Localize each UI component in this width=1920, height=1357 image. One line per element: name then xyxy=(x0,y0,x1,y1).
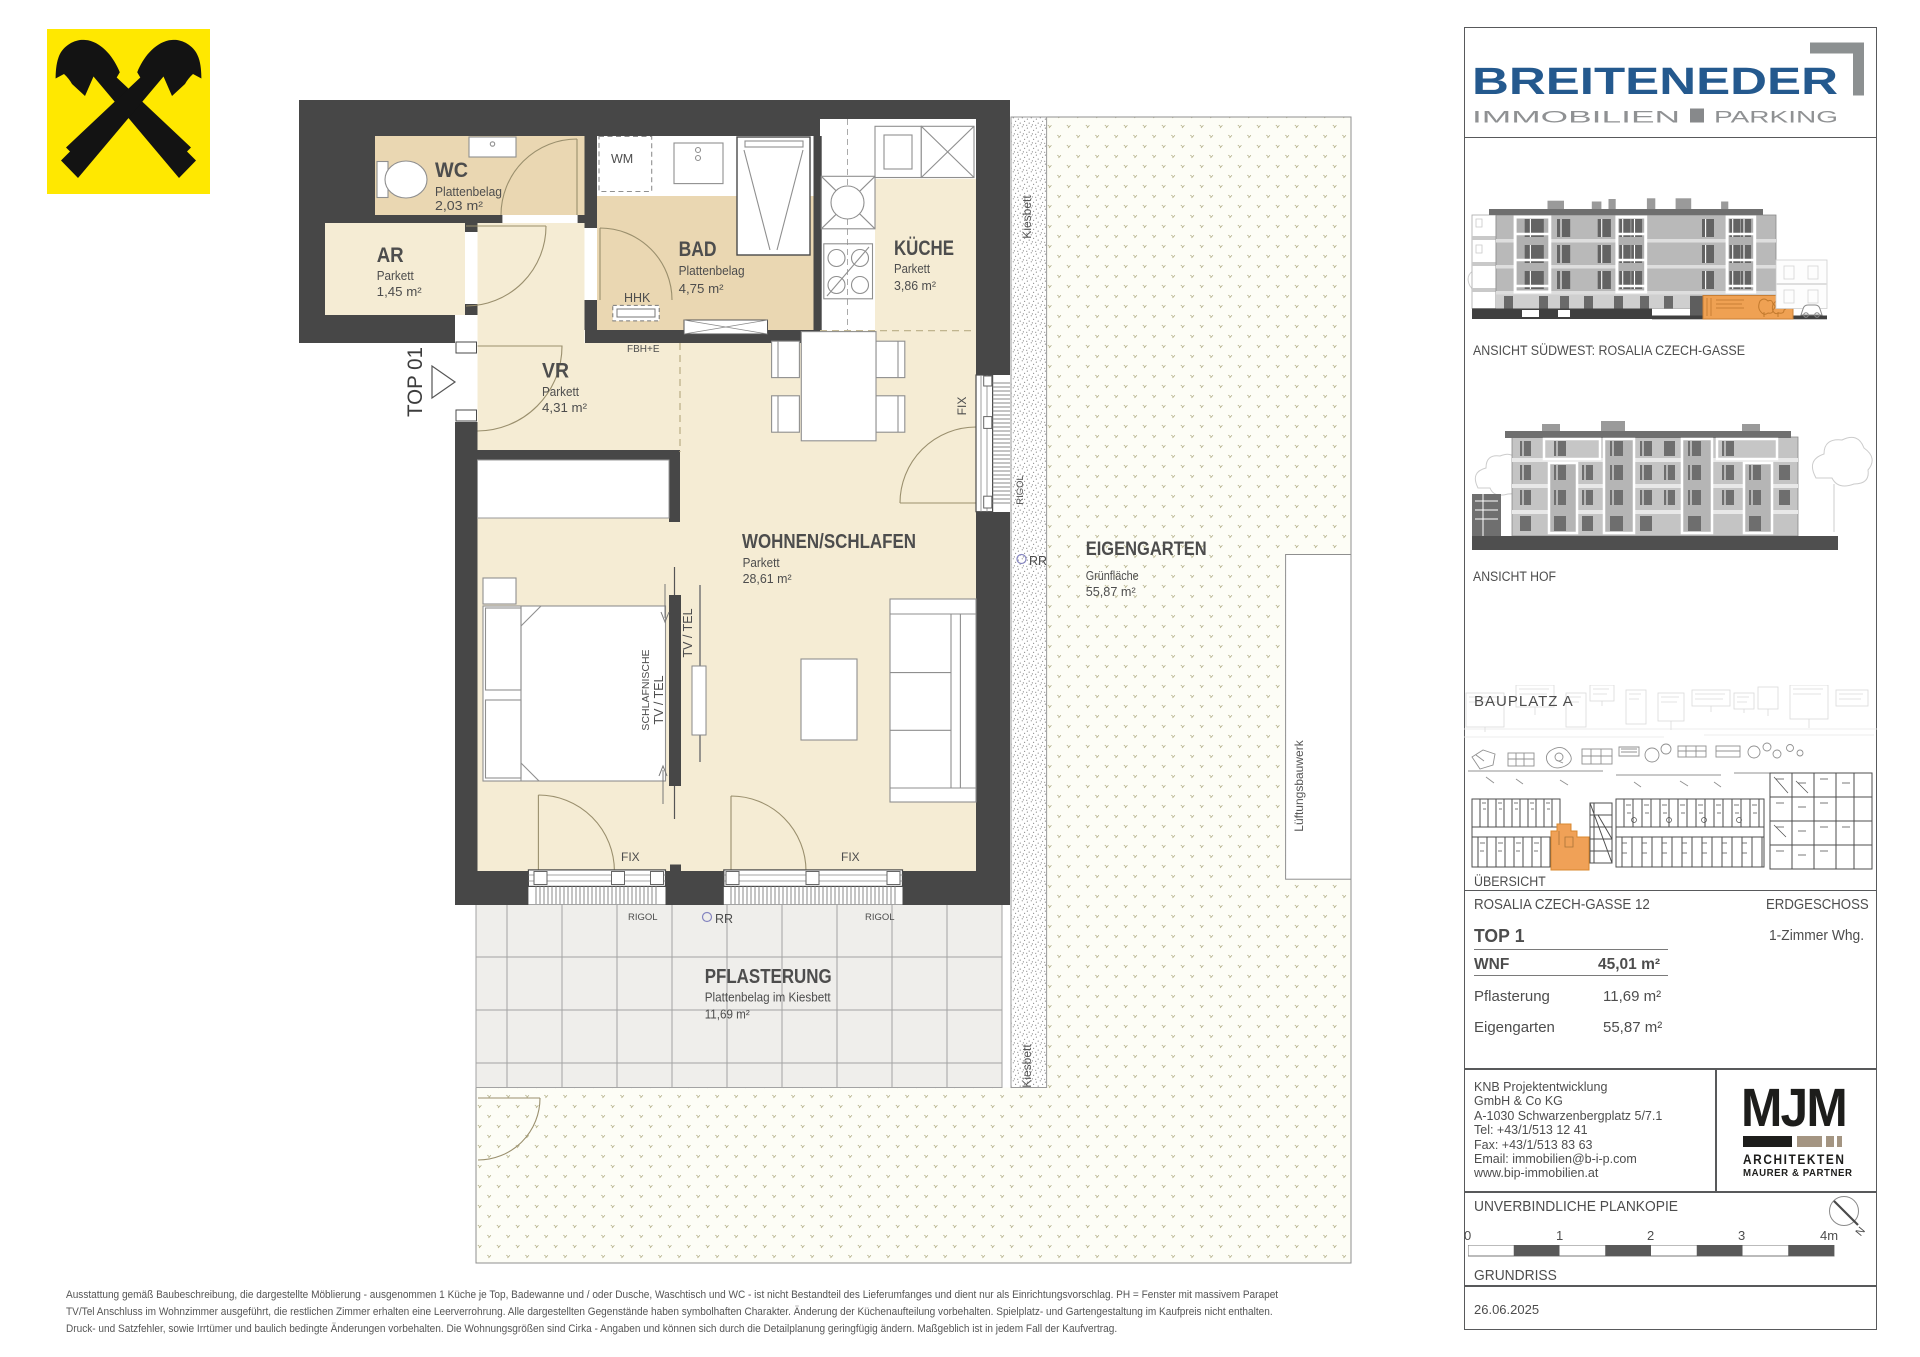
svg-text:PARKING: PARKING xyxy=(1714,108,1838,127)
svg-text:RR: RR xyxy=(1029,554,1047,568)
svg-text:WOHNEN/SCHLAFEN: WOHNEN/SCHLAFEN xyxy=(742,530,916,553)
svg-text:Kiesbett: Kiesbett xyxy=(1020,195,1034,239)
svg-text:2,03 m²: 2,03 m² xyxy=(435,198,484,213)
svg-text:BREITENEDER: BREITENEDER xyxy=(1472,61,1838,103)
svg-text:3,86 m²: 3,86 m² xyxy=(894,278,937,293)
svg-text:11,69 m²: 11,69 m² xyxy=(705,1007,751,1022)
svg-text:TV / TEL: TV / TEL xyxy=(652,675,666,724)
svg-text:28,61 m²: 28,61 m² xyxy=(743,571,793,586)
svg-text:BAUPLATZ A: BAUPLATZ A xyxy=(1474,693,1574,710)
svg-text:Parkett: Parkett xyxy=(377,268,414,283)
svg-text:4,75 m²: 4,75 m² xyxy=(679,281,725,296)
svg-text:WC: WC xyxy=(435,159,468,182)
svg-text:Plattenbelag im Kiesbett: Plattenbelag im Kiesbett xyxy=(705,990,831,1005)
svg-text:TV / TEL: TV / TEL xyxy=(681,608,695,657)
svg-text:SCHLAFNISCHE: SCHLAFNISCHE xyxy=(640,649,652,730)
svg-text:Plattenbelag: Plattenbelag xyxy=(435,184,502,199)
svg-text:AR: AR xyxy=(377,244,404,267)
svg-text:1,45 m²: 1,45 m² xyxy=(377,284,423,299)
svg-text:FIX: FIX xyxy=(955,397,969,416)
svg-text:Parkett: Parkett xyxy=(743,555,780,570)
svg-text:VR: VR xyxy=(542,360,569,383)
svg-text:IMMOBILIEN: IMMOBILIEN xyxy=(1472,108,1680,127)
svg-text:FIX: FIX xyxy=(841,850,860,864)
svg-text:WM: WM xyxy=(611,152,633,166)
svg-text:N: N xyxy=(1854,1225,1868,1239)
svg-text:Lüftungsbauwerk: Lüftungsbauwerk xyxy=(1292,739,1306,831)
svg-text:KÜCHE: KÜCHE xyxy=(894,237,954,260)
svg-text:RIGOL: RIGOL xyxy=(865,912,895,923)
svg-text:RR: RR xyxy=(715,912,733,926)
svg-text:Plattenbelag: Plattenbelag xyxy=(679,263,745,278)
svg-text:4,31 m²: 4,31 m² xyxy=(542,400,588,415)
svg-text:RIGOL: RIGOL xyxy=(1015,475,1026,505)
svg-text:FBH+E: FBH+E xyxy=(627,344,660,355)
svg-text:Grünfläche: Grünfläche xyxy=(1086,568,1139,583)
svg-text:HHK: HHK xyxy=(624,291,651,305)
svg-text:ANSICHT HOF: ANSICHT HOF xyxy=(1473,569,1556,584)
svg-text:ANSICHT SÜDWEST: ROSALIA CZECH: ANSICHT SÜDWEST: ROSALIA CZECH-GASSE xyxy=(1473,343,1745,358)
svg-text:BAD: BAD xyxy=(679,238,717,261)
svg-text:EIGENGARTEN: EIGENGARTEN xyxy=(1086,538,1207,560)
svg-text:55,87 m²: 55,87 m² xyxy=(1086,584,1137,599)
svg-text:Parkett: Parkett xyxy=(894,261,930,276)
svg-text:TOP 01: TOP 01 xyxy=(403,347,427,417)
svg-text:RIGOL: RIGOL xyxy=(628,912,658,923)
svg-text:Kiesbett: Kiesbett xyxy=(1020,1044,1034,1088)
svg-text:FIX: FIX xyxy=(621,850,640,864)
svg-text:Parkett: Parkett xyxy=(542,384,579,399)
svg-text:PFLASTERUNG: PFLASTERUNG xyxy=(705,966,832,988)
